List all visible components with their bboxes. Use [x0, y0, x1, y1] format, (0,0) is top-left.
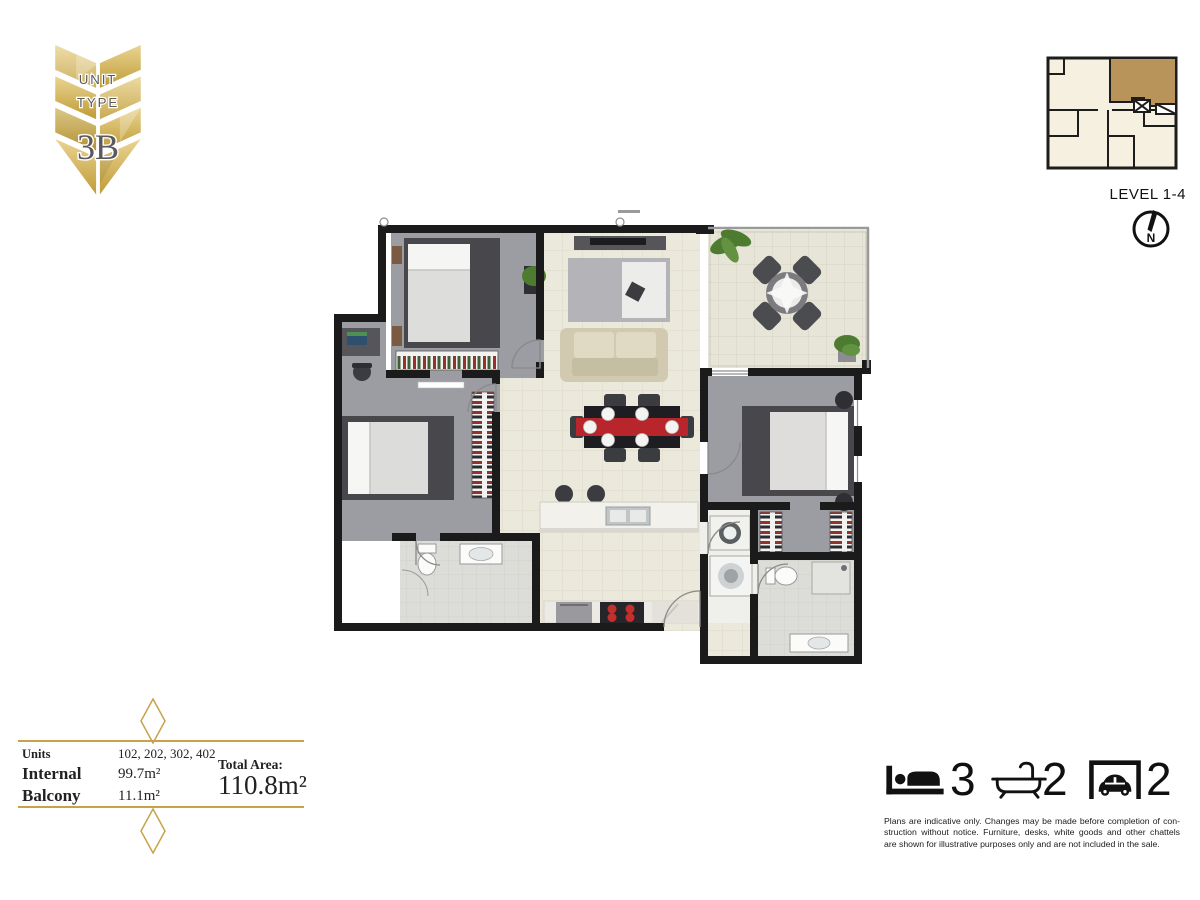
- wir-robe-right: [830, 512, 852, 552]
- sofa: [560, 328, 668, 382]
- bed2-wardrobe: [396, 351, 498, 370]
- badge-unit-code: 3B: [77, 127, 119, 167]
- tv: [590, 238, 646, 245]
- disclaimer-line: struction without notice. Furniture, des…: [884, 827, 1180, 838]
- laundry-tub: [724, 527, 737, 540]
- badge-chevrons: [55, 45, 141, 197]
- highlighted-unit: [1110, 58, 1176, 106]
- compass-north-letter: N: [1147, 231, 1156, 245]
- disclaimer-line: Plans are indicative only. Changes may b…: [884, 816, 1180, 827]
- ensuite-toilet: [775, 567, 797, 585]
- kitchen-bench: [544, 601, 700, 623]
- badge-line1: UNIT: [79, 72, 118, 87]
- disclaimer: Plans are indicative only. Changes may b…: [884, 816, 1180, 850]
- bathroom-count: 2: [1042, 752, 1068, 806]
- bed-icon: [884, 760, 946, 802]
- bedroom-2-furniture: [392, 238, 500, 388]
- level-label: LEVEL 1-4: [1038, 186, 1186, 203]
- counter: [652, 602, 698, 623]
- bedroom-count: 3: [950, 752, 976, 806]
- bed3-wardrobe: [472, 392, 494, 498]
- units-label: Units: [22, 747, 50, 762]
- badge-line2: TYPE: [77, 95, 119, 110]
- cooktop: [600, 602, 644, 623]
- balcony-label: Balcony: [22, 786, 81, 806]
- car-count: 2: [1146, 752, 1172, 806]
- gold-rule-top: [18, 740, 304, 742]
- dimension-dash: [618, 210, 640, 213]
- bath-icon: [990, 758, 1048, 802]
- unit-type-badge: UNIT TYPE 3B: [55, 45, 141, 197]
- floor-plan: [322, 210, 882, 687]
- total-area-value: 110.8m²: [218, 770, 307, 801]
- wir-robe-left: [760, 512, 782, 552]
- nightstand: [835, 391, 853, 409]
- laundry-fixtures: [710, 516, 752, 596]
- level-key-plan: [1038, 50, 1186, 182]
- units-value: 102, 202, 302, 402: [118, 746, 216, 762]
- diamond-ornament-top: [140, 698, 166, 744]
- balcony-value: 11.1m²: [118, 788, 160, 805]
- internal-value: 99.7m²: [118, 766, 160, 783]
- floorplan-page: UNIT TYPE 3B LEVEL 1-4 N: [0, 0, 1200, 900]
- car-icon: [1086, 756, 1144, 802]
- north-compass-icon: N: [1128, 206, 1174, 252]
- internal-label: Internal: [22, 764, 82, 784]
- diamond-ornament-bottom: [140, 808, 166, 854]
- disclaimer-line: are shown for illustrative purposes only…: [884, 839, 1180, 850]
